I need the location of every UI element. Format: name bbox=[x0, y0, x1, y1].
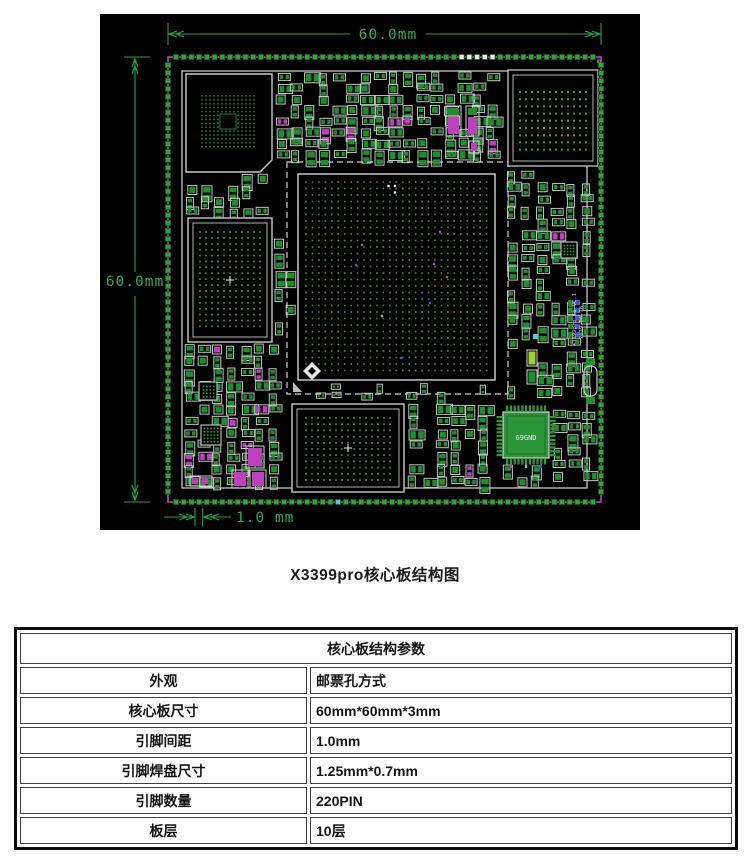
qfp-chip-label: 69GND bbox=[515, 434, 536, 442]
row-value-size: 60mm*60mm*3mm bbox=[310, 697, 732, 724]
row-label-size: 核心板尺寸 bbox=[20, 697, 307, 724]
pcb-svg: 69GNDX3399pro Ca-V1.12019-06-18m60.0mm60… bbox=[100, 14, 640, 530]
figure-caption: X3399pro核心板结构图 bbox=[0, 563, 750, 585]
table-row: 引脚焊盘尺寸 1.25mm*0.7mm bbox=[20, 757, 732, 784]
table-title: 核心板结构参数 bbox=[20, 633, 732, 664]
dim-left-label: 60.0mm bbox=[106, 274, 164, 290]
row-label-layers: 板层 bbox=[20, 817, 307, 844]
row-label-pad-size: 引脚焊盘尺寸 bbox=[20, 757, 307, 784]
row-label-pin-count: 引脚数量 bbox=[20, 787, 307, 814]
row-value-pitch: 1.0mm bbox=[310, 727, 732, 754]
table-row: 核心板尺寸 60mm*60mm*3mm bbox=[20, 697, 732, 724]
page: 69GNDX3399pro Ca-V1.12019-06-18m60.0mm60… bbox=[0, 0, 750, 867]
table-row: 板层 10层 bbox=[20, 817, 732, 844]
row-value-appearance: 邮票孔方式 bbox=[310, 667, 732, 694]
table-title-row: 核心板结构参数 bbox=[20, 633, 732, 664]
corner-mark: m bbox=[597, 58, 601, 65]
row-label-appearance: 外观 bbox=[20, 667, 307, 694]
params-table: 核心板结构参数 外观 邮票孔方式 核心板尺寸 60mm*60mm*3mm 引脚间… bbox=[14, 627, 738, 850]
silk-text-1: X3399pro Ca-V1.1 bbox=[572, 293, 578, 346]
table-row: 引脚间距 1.0mm bbox=[20, 727, 732, 754]
dim-top-label: 60.0mm bbox=[359, 27, 417, 43]
silk-text-2: 2019-06-18 bbox=[579, 306, 585, 339]
table-row: 引脚数量 220PIN bbox=[20, 787, 732, 814]
table-row: 外观 邮票孔方式 bbox=[20, 667, 732, 694]
pcb-layout-image: 69GNDX3399pro Ca-V1.12019-06-18m60.0mm60… bbox=[100, 14, 640, 530]
row-value-pad-size: 1.25mm*0.7mm bbox=[310, 757, 732, 784]
dim-pitch-label: 1.0 mm bbox=[236, 510, 294, 526]
row-value-layers: 10层 bbox=[310, 817, 732, 844]
row-label-pitch: 引脚间距 bbox=[20, 727, 307, 754]
row-value-pin-count: 220PIN bbox=[310, 787, 732, 814]
